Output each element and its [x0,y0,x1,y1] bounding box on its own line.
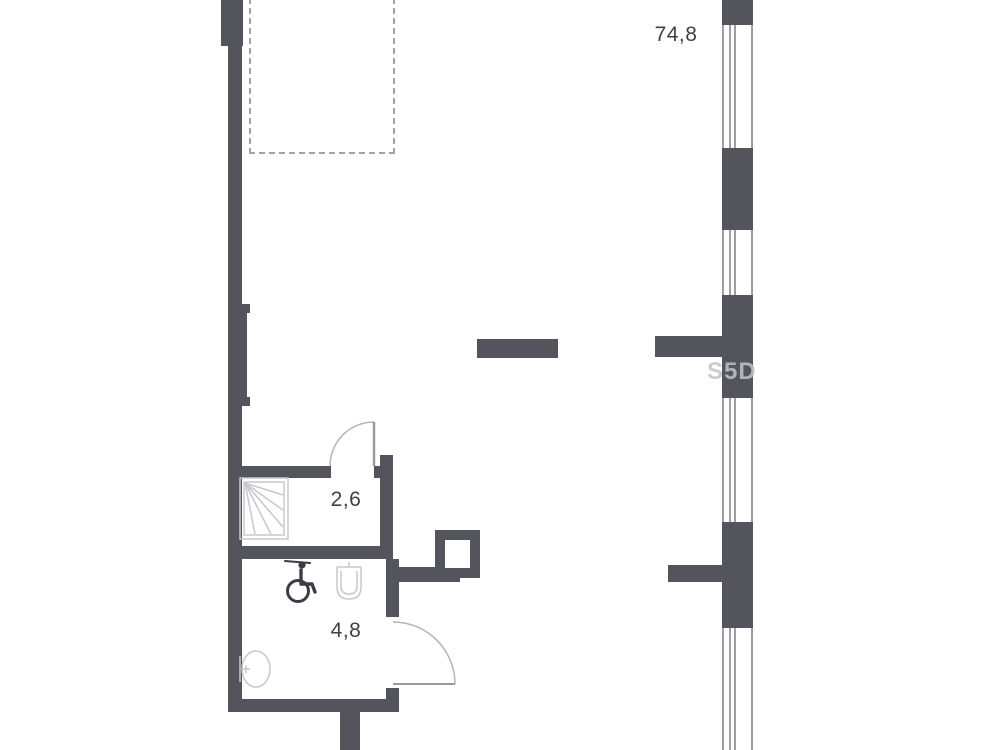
wall-island [477,339,558,358]
wall-right-pier-2 [722,148,753,230]
wall-right-pier-4 [722,522,753,628]
dashed-zone-outline [249,0,395,154]
room-label-shower: 2,6 [318,488,374,512]
window-2 [722,230,753,295]
wheelchair-accessible-icon [284,560,320,606]
wall-shower-right [380,455,393,559]
wall-between-shower-bath [228,546,393,559]
wall-bottom-column [340,712,360,750]
door-swing-arc-bathroom [391,618,459,688]
pillar-column [435,530,480,578]
round-basin-toilet-icon [237,648,273,690]
wall-left-liner [242,304,247,406]
window-3 [722,398,753,522]
shower-tray-icon [239,477,289,540]
wall-right-stub-lower [668,565,725,582]
washbasin-icon [333,561,365,603]
watermark-text: S5D [707,358,757,386]
wall-left-main [228,0,242,712]
floor-plan-canvas: 74,8 2,6 4,8 S5D [0,0,1000,750]
wall-right-pier-1 [722,0,753,25]
window-1 [722,25,753,148]
wall-left-liner-cap-top [242,304,250,313]
window-4 [722,628,753,750]
room-label-bathroom: 4,8 [318,619,374,643]
room-label-main: 74,8 [640,23,712,47]
wall-bottom [228,699,399,712]
wall-right-stub-upper [655,336,722,357]
door-swing-arc-shower [329,417,379,469]
wall-left-liner-cap-bottom [242,397,250,406]
